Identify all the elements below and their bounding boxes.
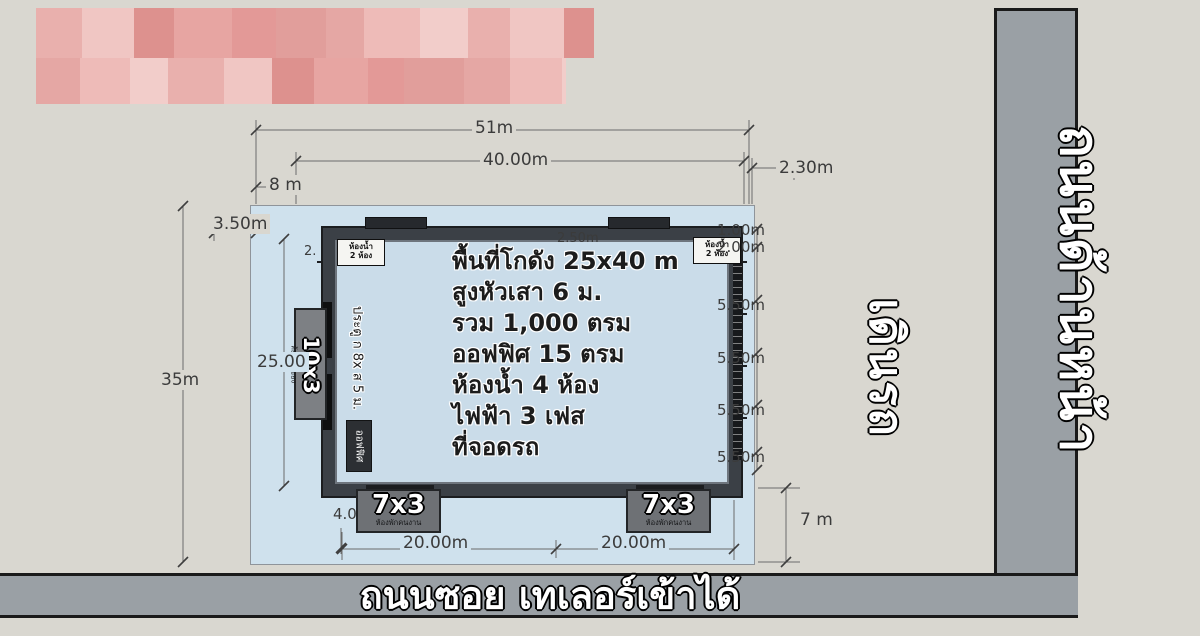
censor-tile xyxy=(326,8,364,58)
censor-tile xyxy=(82,8,134,58)
building-info-block: พื้นที่โกดัง 25x40 m สูงหัวเสา 6 ม. รวม … xyxy=(452,246,679,463)
top-canopy-right xyxy=(608,217,670,229)
censor-tile xyxy=(36,58,80,104)
office-label: ออฟฟิศ xyxy=(352,430,367,463)
dim-inner-top-center: 2.50m xyxy=(556,231,600,246)
dim-right-stack-4: 5.50m xyxy=(714,401,766,419)
dim-right-stack-5: 5.50m xyxy=(714,448,766,466)
dim-right-stack-2: 5.50m xyxy=(714,296,766,314)
dim-top-left: 8 m xyxy=(266,175,305,195)
censor-tile xyxy=(80,58,130,104)
censor-tile xyxy=(174,8,232,58)
office-box: ออฟฟิศ xyxy=(346,420,372,472)
door-spec-label: ประตู ก 8x ส 5 ม. xyxy=(348,306,369,410)
censor-tile xyxy=(510,8,564,58)
censor-tile xyxy=(368,58,404,104)
censor-tile xyxy=(464,58,510,104)
dim-top-total: 51m xyxy=(472,118,516,138)
toilet-label-line2: 2 ห้อง xyxy=(350,251,372,260)
bottom-annex-size: 7x3 xyxy=(628,492,709,518)
censor-tile xyxy=(562,58,566,104)
dim-top-main: 40.00m xyxy=(480,150,551,170)
dim-top-right: 2.30m xyxy=(776,158,836,178)
bottom-annex-left-7x3: 7x3 ห้องพักคนงาน xyxy=(356,489,441,533)
info-line: ออฟฟิศ 15 ตรม xyxy=(452,339,679,370)
info-line: ไฟฟ้า 3 เฟส xyxy=(452,401,679,432)
toilet-label-left: ห้องน้ำ 2 ห้อง xyxy=(337,239,385,266)
dim-bottom-right-span: 20.00m xyxy=(598,533,669,553)
road-junction xyxy=(997,576,1075,615)
censor-tile xyxy=(420,8,468,58)
top-canopy-left xyxy=(365,217,427,229)
toilet-label-line1: ห้องน้ำ xyxy=(349,242,373,251)
censor-tile xyxy=(314,58,368,104)
censor-tile xyxy=(134,8,174,58)
dim-bottom-left-span: 20.00m xyxy=(400,533,471,553)
censor-tile xyxy=(404,58,464,104)
dim-left-offset: 3.50m xyxy=(210,214,270,234)
bottom-annex-caption: ห้องพักคนงาน xyxy=(358,518,439,527)
bottom-road-label: ถนนซอย เทเลอร์เข้าได้ xyxy=(360,565,741,626)
censor-tile xyxy=(510,58,562,104)
censored-area xyxy=(36,8,596,105)
censor-tile xyxy=(36,8,82,58)
bottom-annex-right-7x3: 7x3 ห้องพักคนงาน xyxy=(626,489,711,533)
dim-left-total: 35m xyxy=(158,370,202,390)
censor-tile xyxy=(364,8,420,58)
censor-tile xyxy=(564,8,594,58)
censor-tile xyxy=(224,58,272,104)
dim-bottom-gap: 7 m xyxy=(797,510,836,530)
info-line: พื้นที่โกดัง 25x40 m xyxy=(452,246,679,277)
info-line: สูงหัวเสา 6 ม. xyxy=(452,277,679,308)
info-line: ห้องน้ำ 4 ห้อง xyxy=(452,370,679,401)
dim-bottom-offset: 4.0 xyxy=(330,505,360,523)
site-plan-canvas: ห้องน้ำ 2 ห้อง ห้องน้ำ 2 ห้อง 10x3 ห้องเ… xyxy=(0,0,1200,636)
traffic-flow-label: เดินรถ xyxy=(850,298,923,438)
dim-right-stack-3: 5.50m xyxy=(714,349,766,367)
dim-right-stack-1: 2.00m xyxy=(714,238,766,256)
censor-tile xyxy=(168,58,224,104)
info-line: ที่จอดรถ xyxy=(452,432,679,463)
dim-left-main: 25.00 xyxy=(254,352,309,372)
censor-tile xyxy=(276,8,326,58)
dim-right-stack-0: 1.00m xyxy=(714,221,766,239)
censor-tile xyxy=(272,58,314,104)
right-road-label: ถนนด้านหน้า xyxy=(1037,125,1123,455)
dim-inner-top-left: 2. xyxy=(303,244,317,259)
bottom-annex-caption: ห้องพักคนงาน xyxy=(628,518,709,527)
info-line: รวม 1,000 ตรม xyxy=(452,308,679,339)
bottom-annex-size: 7x3 xyxy=(358,492,439,518)
censor-tile xyxy=(232,8,276,58)
censor-tile xyxy=(130,58,168,104)
censor-tile xyxy=(468,8,510,58)
